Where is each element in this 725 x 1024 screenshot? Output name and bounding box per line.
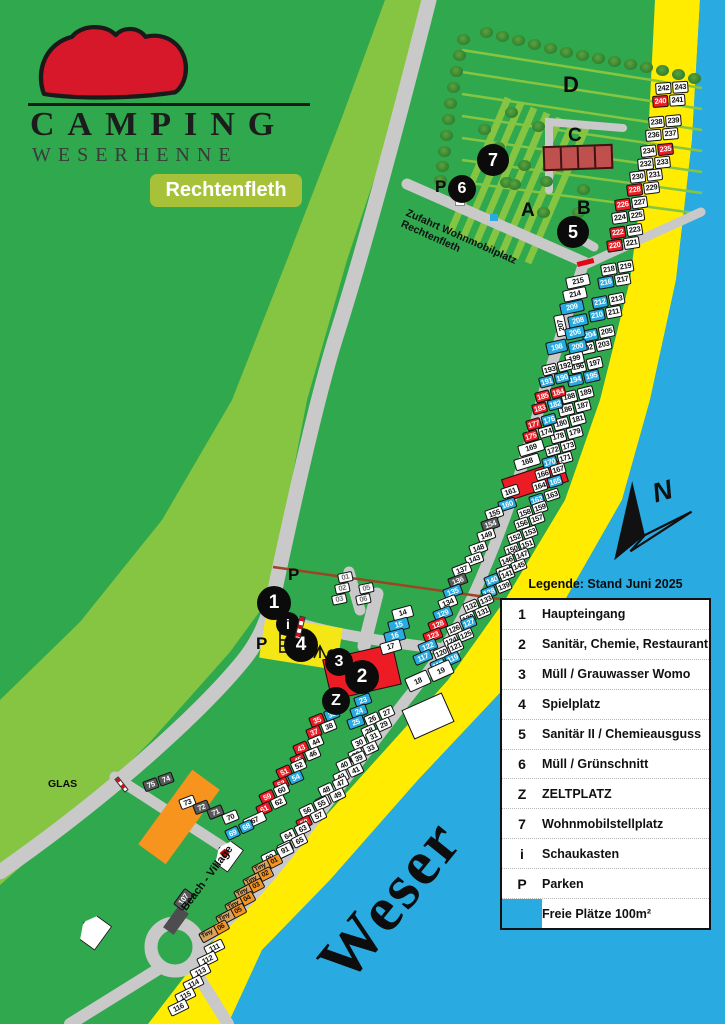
legend-symbol: 4	[502, 690, 542, 719]
logo-subtitle: WESERHENNE	[32, 144, 322, 167]
legend-symbol: 5	[502, 720, 542, 749]
legend-row: PParken	[502, 868, 709, 898]
legend-label: Spielplatz	[542, 697, 600, 711]
legend-row: 1Haupteingang	[502, 600, 709, 629]
legend-label: ZELTPLATZ	[542, 787, 612, 801]
legend-symbol: 2	[502, 630, 542, 659]
legend-symbol: 1	[502, 600, 542, 629]
legend-symbol: i	[502, 839, 542, 868]
blue-square	[490, 214, 498, 221]
legend-row: 6Müll / Grünschnitt	[502, 749, 709, 779]
legend-row: 4Spielplatz	[502, 689, 709, 719]
legend-label: Schaukasten	[542, 847, 619, 861]
legend-symbol: 7	[502, 809, 542, 838]
legend-label: Haupteingang	[542, 607, 625, 621]
legend-label: Müll / Grauwasser Womo	[542, 667, 690, 681]
legend-symbol: Z	[502, 779, 542, 808]
playground-icons	[274, 624, 344, 669]
legend-row: 2Sanitär, Chemie, Restaurant	[502, 629, 709, 659]
campground-map: 2422432402412382392362372342352322332302…	[0, 0, 725, 1024]
legend-symbol: 6	[502, 750, 542, 779]
legend-row: Freie Plätze 100m²	[502, 898, 709, 928]
building-c	[543, 144, 614, 171]
legend-label: Sanitär II / Chemieausguss	[542, 727, 701, 741]
legend-label: Müll / Grünschnitt	[542, 757, 648, 771]
legend-label: Parken	[542, 877, 584, 891]
white-square	[455, 198, 465, 206]
legend-row: 3Müll / Grauwasser Womo	[502, 659, 709, 689]
compass-north: N	[607, 468, 697, 568]
glas-label: GLAS	[48, 778, 77, 790]
legend-label: Sanitär, Chemie, Restaurant	[542, 637, 708, 651]
legend-row: 5Sanitär II / Chemieausguss	[502, 719, 709, 749]
legend-row: iSchaukasten	[502, 838, 709, 868]
logo-title: CAMPING	[30, 106, 320, 144]
legend-label: Freie Plätze 100m²	[542, 907, 651, 921]
hen-logo-icon	[30, 20, 205, 104]
legend-symbol: P	[502, 869, 542, 898]
logo-location-badge: Rechtenfleth	[150, 174, 302, 207]
legend-row: ZZELTPLATZ	[502, 778, 709, 808]
zeltplatz-fence	[273, 567, 500, 599]
legend-free-swatch	[502, 899, 542, 928]
legend-row: 7Wohnmobilstellplatz	[502, 808, 709, 838]
legend-title: Legende: Stand Juni 2025	[498, 577, 713, 591]
legend-label: Wohnmobilstellplatz	[542, 817, 663, 831]
north-letter: N	[649, 474, 676, 508]
legend-symbol: 3	[502, 660, 542, 689]
legend: 1Haupteingang2Sanitär, Chemie, Restauran…	[500, 598, 711, 930]
